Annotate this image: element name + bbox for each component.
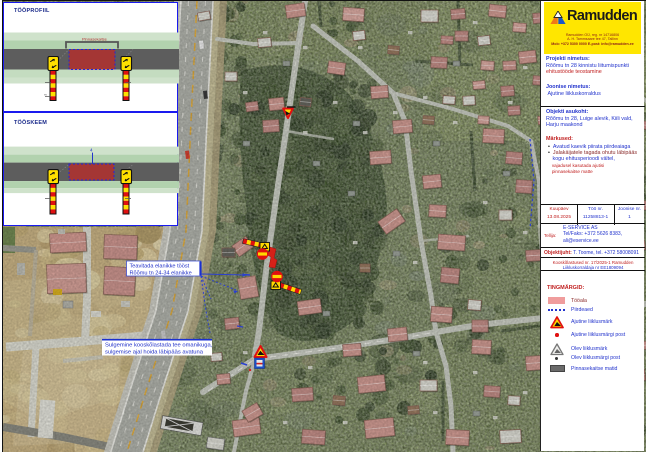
svg-text:m: m bbox=[44, 93, 47, 97]
svg-text:Rõõmu tn 24-34 elanikke: Rõõmu tn 24-34 elanikke bbox=[130, 270, 192, 276]
svg-text:Sulgemine kooskõlastada tee om: Sulgemine kooskõlastada tee omanikuga, bbox=[105, 343, 213, 349]
svg-text:Pinnasekaitse: Pinnasekaitse bbox=[82, 37, 108, 42]
svg-text:Teavitada elanikke tööst: Teavitada elanikke tööst bbox=[130, 263, 190, 269]
svg-text:sulgemise ajal hoida läbipääs: sulgemise ajal hoida läbipääs avatuna bbox=[105, 350, 204, 356]
